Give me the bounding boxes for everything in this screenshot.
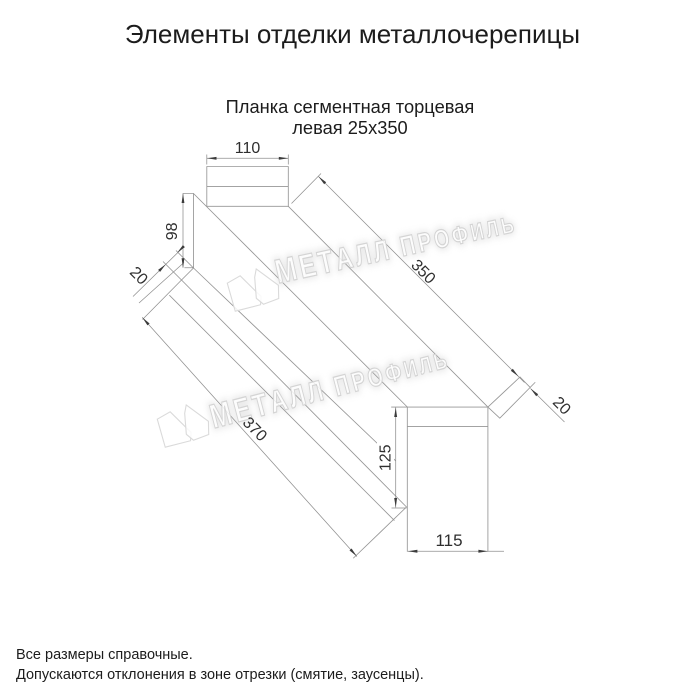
- svg-text:МЕТАЛЛ ПРОФИЛЬ: МЕТАЛЛ ПРОФИЛЬ: [272, 202, 520, 291]
- svg-text:115: 115: [435, 531, 462, 550]
- svg-text:Все размеры справочные.: Все размеры справочные.: [16, 647, 193, 663]
- svg-text:Элементы отделки металлочерепи: Элементы отделки металлочерепицы: [125, 19, 580, 49]
- svg-text:Допускаются отклонения в зоне: Допускаются отклонения в зоне отрезки (с…: [16, 667, 424, 683]
- svg-text:110: 110: [235, 140, 261, 157]
- svg-text:125: 125: [378, 444, 395, 471]
- svg-text:20: 20: [126, 264, 151, 289]
- svg-text:350: 350: [407, 257, 438, 288]
- svg-text:98: 98: [164, 222, 181, 240]
- svg-text:Планка сегментная торцевая: Планка сегментная торцевая: [226, 96, 475, 117]
- svg-text:20: 20: [549, 394, 574, 419]
- svg-text:левая 25х350: левая 25х350: [292, 117, 407, 138]
